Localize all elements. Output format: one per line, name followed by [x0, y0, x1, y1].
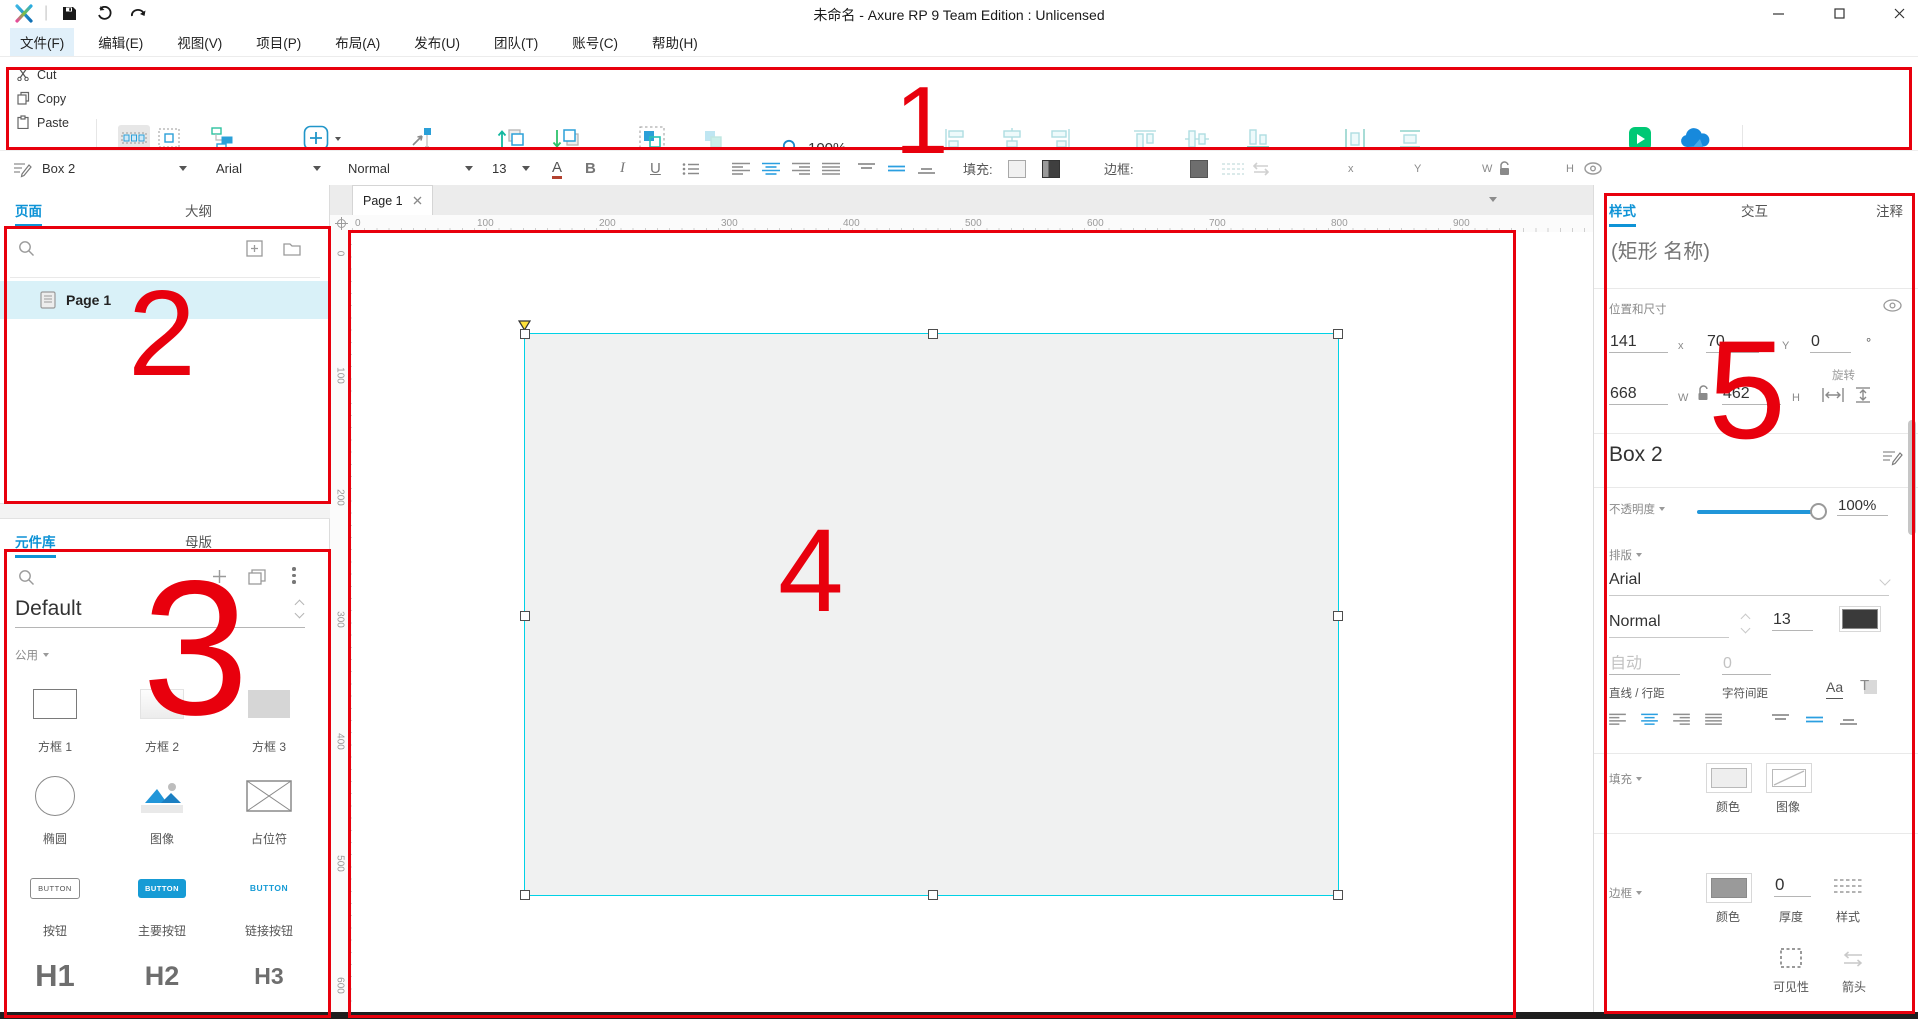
eye-icon[interactable]	[1584, 151, 1602, 186]
border-thickness-input[interactable]	[1774, 875, 1811, 897]
tab-close-icon[interactable]	[413, 194, 422, 208]
case-icon[interactable]	[1826, 679, 1843, 699]
widgets-search-icon[interactable]	[18, 569, 35, 591]
valign-top-icon	[858, 162, 875, 175]
underline-button[interactable]	[650, 151, 661, 186]
menu-team[interactable]: 团队(T)	[484, 28, 548, 56]
fill-section-label: 填充	[1609, 771, 1632, 787]
text-align-justify-button[interactable]	[822, 151, 840, 186]
style-y-input[interactable]	[1706, 333, 1759, 353]
resize-handle-se[interactable]	[1333, 890, 1343, 900]
menu-arrange[interactable]: 布局(A)	[325, 28, 390, 56]
font-color-icon	[552, 159, 562, 179]
h-label: H	[1566, 151, 1574, 186]
text-align-center-button[interactable]	[762, 151, 780, 186]
menu-edit[interactable]: 编辑(E)	[88, 28, 153, 56]
border-style-picker[interactable]	[1834, 877, 1862, 900]
bullet-list-button[interactable]	[682, 151, 700, 186]
font-size-select[interactable]: 13	[492, 151, 530, 186]
widget-style-value: Box 2	[42, 161, 75, 176]
pages-search-icon[interactable]	[18, 240, 35, 262]
bold-icon	[585, 160, 596, 177]
border-style-label: 样式	[1826, 908, 1870, 925]
fill-color-label: 颜色	[1706, 798, 1750, 815]
panel-align-center-button[interactable]	[1641, 713, 1658, 731]
image-widget-icon	[141, 779, 183, 813]
char-spacing-input[interactable]	[1722, 655, 1771, 675]
titlebar: | 未命名 - Axure RP 9 Team Edition : Unlice…	[0, 0, 1918, 28]
tab-widget-library[interactable]: 元件库	[15, 531, 56, 551]
widget-primary-button[interactable]: BUTTON 主要按钮	[115, 860, 209, 939]
widget-style-select[interactable]: Box 2	[42, 151, 187, 186]
tab-pages[interactable]: 页面	[15, 200, 42, 220]
text-align-left-button[interactable]	[732, 151, 750, 186]
cut-icon	[16, 67, 30, 84]
typography-label: 排版	[1609, 547, 1632, 563]
panel-scrollbar-thumb[interactable]	[1908, 420, 1916, 535]
maximize-button[interactable]	[1833, 4, 1846, 22]
opacity-label: 不透明度	[1609, 501, 1655, 517]
page-tree-item[interactable]: Page 1	[0, 281, 330, 319]
degree-label: °	[1866, 335, 1871, 350]
category-caret-icon	[43, 653, 49, 657]
paste-icon	[16, 115, 30, 132]
widget-link-button[interactable]: BUTTON 链接按钮	[222, 860, 316, 939]
resize-handle-s[interactable]	[928, 890, 938, 900]
text-shadow-icon[interactable]	[1860, 677, 1869, 695]
ruler-crosshair-icon	[335, 217, 348, 230]
text-align-right-button[interactable]	[792, 151, 810, 186]
w-label: W	[1482, 151, 1492, 186]
panel-font-weight-select[interactable]: Normal	[1609, 613, 1729, 638]
insert-caret-icon	[335, 137, 341, 141]
resize-handle-e[interactable]	[1333, 611, 1343, 621]
selected-rectangle-widget[interactable]	[524, 333, 1339, 896]
border-color-label: 颜色	[1706, 908, 1750, 925]
fit-width-icon[interactable]	[1822, 387, 1844, 408]
border-label: 边框:	[1104, 151, 1134, 186]
fill-image-label: 图像	[1766, 798, 1810, 815]
panel-font-weight-value: Normal	[1609, 613, 1661, 630]
visibility-label: 可见性	[1766, 978, 1816, 995]
rotation-input[interactable]	[1810, 333, 1851, 353]
menu-view[interactable]: 视图(V)	[167, 28, 232, 56]
arrow-style-icon	[1842, 951, 1864, 967]
window-title: 未命名 - Axure RP 9 Team Edition : Unlicens…	[0, 5, 1918, 25]
border-style-icon	[1222, 162, 1244, 176]
valign-top-button[interactable]	[858, 151, 875, 186]
widget-h3[interactable]: H3 标题 3	[222, 948, 316, 1019]
canvas-region: Page 1 0 100 200 300 400 500 600 700 800…	[330, 185, 1593, 1012]
canvas-tab-label: Page 1	[363, 194, 403, 208]
font-color-swatch[interactable]	[1842, 609, 1878, 629]
aspect-lock-icon[interactable]	[1696, 385, 1710, 406]
italic-icon	[620, 160, 625, 177]
rotation-label: 旋转	[1832, 367, 1855, 383]
bullet-list-icon	[682, 162, 700, 176]
library-select-value: Default	[15, 597, 82, 621]
ruler-origin-corner	[330, 215, 353, 233]
fill-section[interactable]: 填充	[1609, 771, 1642, 787]
library-stack-icon[interactable]	[248, 569, 266, 590]
swap-arrows-icon	[1252, 151, 1270, 186]
widget-ellipse[interactable]: 椭圆	[8, 768, 102, 847]
menu-account[interactable]: 账号(C)	[562, 28, 628, 56]
italic-button[interactable]	[620, 151, 625, 186]
widget-image[interactable]: 图像	[115, 768, 209, 847]
valign-bottom-icon	[918, 162, 935, 175]
widget-category-label: 公用	[15, 647, 38, 663]
widget-box2[interactable]: 方框 2	[115, 676, 209, 755]
library-spinner-icon	[296, 601, 303, 617]
opacity-section[interactable]: 不透明度	[1609, 501, 1665, 517]
panel-font-family-value: Arial	[1609, 571, 1641, 589]
font-color-button[interactable]	[552, 151, 562, 186]
bold-button[interactable]	[585, 151, 596, 186]
menu-publish[interactable]: 发布(U)	[404, 28, 470, 56]
fill-label: 填充:	[963, 151, 993, 186]
widget-button[interactable]: BUTTON 按钮	[8, 860, 102, 939]
tab-notes[interactable]: 注释	[1876, 200, 1903, 220]
opacity-slider-track[interactable]	[1697, 510, 1819, 514]
page-doc-icon	[40, 291, 56, 309]
border-style-button	[1222, 151, 1244, 186]
char-spacing-label: 字符间距	[1722, 685, 1768, 701]
opacity-slider-knob[interactable]	[1810, 503, 1827, 520]
cut-button[interactable]: Cut	[16, 63, 69, 87]
library-select[interactable]: Default	[15, 597, 305, 628]
menu-help[interactable]: 帮助(H)	[642, 28, 708, 56]
border-color-button[interactable]	[1706, 873, 1752, 903]
text-align-justify-icon	[822, 162, 840, 176]
panel-font-size-input[interactable]	[1772, 611, 1813, 631]
panel-align-justify-button[interactable]	[1705, 713, 1722, 731]
add-page-icon	[246, 240, 263, 262]
widget-name-input[interactable]	[1609, 240, 1898, 265]
add-library-icon[interactable]	[212, 569, 227, 589]
canvas-tab-strip: Page 1	[330, 185, 1593, 216]
position-eye-icon[interactable]	[1883, 299, 1902, 317]
line-height-input[interactable]	[1609, 655, 1680, 675]
text-align-left-icon	[732, 162, 750, 176]
widget-h1[interactable]: H1 标题 1	[8, 948, 102, 1019]
tab-masters[interactable]: 母版	[185, 531, 212, 551]
tab-outline[interactable]: 大纲	[185, 200, 212, 220]
page-item-label: Page 1	[66, 292, 111, 308]
style-edit-icon[interactable]	[12, 151, 32, 186]
fill-image-button[interactable]	[1766, 763, 1812, 793]
arrow-style-picker[interactable]	[1842, 951, 1864, 972]
font-weight-spinner-icon[interactable]	[1742, 615, 1749, 632]
manage-style-icon[interactable]	[1881, 447, 1903, 472]
folder-icon[interactable]	[283, 241, 301, 261]
widget-box3[interactable]: 方框 3	[222, 676, 316, 755]
panel-valign-bottom-button[interactable]	[1840, 713, 1857, 731]
typography-section[interactable]: 排版	[1609, 547, 1642, 563]
arrow-label: 箭头	[1834, 978, 1874, 995]
widget-category-toggle[interactable]: 公用	[15, 647, 49, 663]
style-x-input[interactable]	[1609, 333, 1668, 353]
axure-app-window: | 未命名 - Axure RP 9 Team Edition : Unlice…	[0, 0, 1918, 1019]
border-color-swatch[interactable]	[1190, 151, 1208, 186]
widget-style-name: Box 2	[1609, 443, 1663, 467]
fill-shadow-swatch[interactable]	[1042, 151, 1060, 186]
tab-interactions[interactable]: 交互	[1741, 200, 1768, 220]
library-menu-icon[interactable]	[292, 567, 296, 584]
valign-bottom-button[interactable]	[918, 151, 935, 186]
format-toolbar: Box 2 Arial Normal 13	[0, 150, 1918, 187]
border-visibility-icon	[1779, 947, 1803, 969]
copy-button[interactable]: Copy	[16, 87, 69, 111]
fill-color-swatch[interactable]	[1008, 151, 1026, 186]
style-y-label: Y	[1782, 340, 1789, 352]
font-family-value: Arial	[216, 161, 242, 176]
menubar: 文件(F) 编辑(E) 视图(V) 项目(P) 布局(A) 发布(U) 团队(T…	[0, 27, 1918, 57]
font-size-value: 13	[492, 161, 506, 176]
contain-select-mode-icon[interactable]	[158, 128, 180, 151]
resize-handle-ne[interactable]	[1333, 329, 1343, 339]
border-section-label: 边框	[1609, 885, 1632, 901]
text-align-center-icon	[762, 162, 780, 176]
tab-list-caret-icon[interactable]	[1489, 197, 1497, 202]
menu-project[interactable]: 项目(P)	[246, 28, 311, 56]
minimize-button[interactable]	[1772, 4, 1785, 22]
position-size-section-label: 位置和尺寸	[1609, 301, 1667, 317]
panel-valign-top-button[interactable]	[1772, 713, 1789, 731]
fit-height-icon[interactable]	[1854, 387, 1872, 408]
line-height-label: 直线 / 行距	[1609, 685, 1665, 701]
y-label: Y	[1414, 151, 1421, 186]
style-panel: 样式 交互 注释 位置和尺寸 x Y ° 旋转 W H Box 2	[1593, 185, 1918, 1012]
border-visibility-picker[interactable]	[1779, 947, 1803, 974]
resize-handle-nw[interactable]	[520, 329, 530, 339]
lock-ratio-icon[interactable]	[1498, 151, 1511, 186]
text-align-right-icon	[792, 162, 810, 176]
panel-align-right-button[interactable]	[1673, 713, 1690, 731]
canvas[interactable]	[352, 232, 1593, 1012]
font-family-chevron-icon	[1879, 574, 1890, 585]
font-weight-value: Normal	[348, 161, 390, 176]
vertical-ruler: 0 100 200 300 400 500 600	[330, 232, 353, 1012]
panel-font-family-select[interactable]: Arial	[1609, 571, 1889, 596]
fill-color-button[interactable]	[1706, 763, 1752, 793]
panel-align-left-button[interactable]	[1609, 713, 1626, 731]
style-h-input[interactable]	[1722, 385, 1781, 405]
resize-handle-sw[interactable]	[520, 890, 530, 900]
border-section[interactable]: 边框	[1609, 885, 1642, 901]
valign-middle-icon	[888, 162, 905, 175]
paste-button[interactable]: Paste	[16, 111, 69, 135]
canvas-tab-page1[interactable]: Page 1	[352, 185, 433, 215]
close-button[interactable]	[1893, 4, 1906, 22]
widget-h2[interactable]: H2 标题 2	[115, 948, 209, 1019]
tab-style[interactable]: 样式	[1609, 200, 1636, 220]
style-x-label: x	[1678, 340, 1684, 352]
left-panel: 页面 大纲 Page 1 元件库 母版	[0, 185, 330, 1012]
border-thickness-label: 厚度	[1766, 908, 1816, 925]
border-style-dashes-icon	[1834, 877, 1862, 895]
style-w-label: W	[1678, 392, 1688, 404]
widget-placeholder[interactable]: 占位符	[222, 768, 316, 847]
resize-handle-w[interactable]	[520, 611, 530, 621]
copy-icon	[16, 91, 30, 108]
style-h-label: H	[1792, 392, 1800, 404]
bottom-edge-bar	[0, 1012, 1918, 1019]
font-weight-select[interactable]: Normal	[348, 151, 473, 186]
underline-icon	[650, 160, 661, 177]
main-toolbar: Cut Copy Paste 选择模式	[0, 57, 1918, 150]
font-family-select[interactable]: Arial	[216, 151, 321, 186]
style-w-input[interactable]	[1609, 385, 1668, 405]
panel-valign-middle-button[interactable]	[1806, 713, 1823, 731]
resize-handle-n[interactable]	[928, 329, 938, 339]
opacity-input[interactable]	[1837, 497, 1888, 516]
horizontal-ruler: 0 100 200 300 400 500 600 700 800 900	[352, 215, 1593, 233]
x-label: x	[1348, 151, 1354, 186]
widget-box1[interactable]: 方框 1	[8, 676, 102, 755]
menu-file[interactable]: 文件(F)	[10, 28, 74, 56]
valign-middle-button[interactable]	[888, 151, 905, 186]
